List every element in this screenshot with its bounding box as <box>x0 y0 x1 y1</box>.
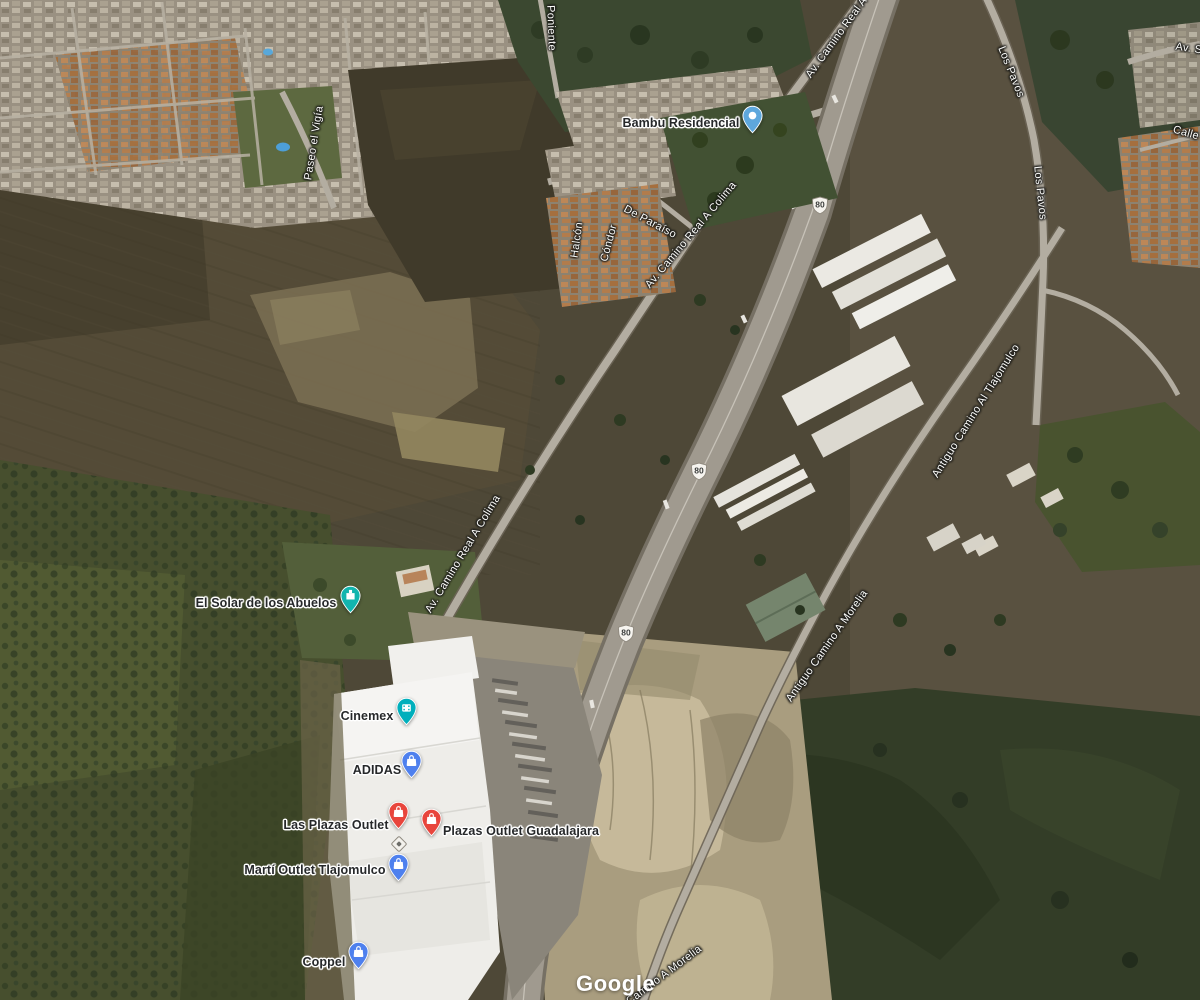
satellite-imagery <box>0 0 1200 1000</box>
route-number: 80 <box>810 200 830 210</box>
poi-label[interactable]: Plazas Outlet Guadalajara <box>443 824 599 838</box>
poi-label[interactable]: Las Plazas Outlet <box>283 818 388 832</box>
poi-label[interactable]: Bambu Residencial <box>622 116 739 130</box>
poi-label[interactable]: Cinemex <box>341 709 394 723</box>
poi-pin-lodging[interactable] <box>340 585 361 614</box>
route-shield-80: 80 <box>616 624 636 645</box>
route-number: 80 <box>616 628 636 638</box>
poi-label[interactable]: Martí Outlet Tlajomulco <box>244 863 385 877</box>
poi-pin-place[interactable] <box>742 105 763 134</box>
poi-pin-shopping[interactable] <box>348 941 369 970</box>
poi-pin-movies[interactable] <box>396 697 417 726</box>
poi-pin-shopping[interactable] <box>388 853 409 882</box>
poi-pin-shopping[interactable] <box>401 750 422 779</box>
poi-label[interactable]: El Solar de los Abuelos <box>196 596 337 610</box>
poi-label[interactable]: ADIDAS <box>353 763 402 777</box>
route-shield-80: 80 <box>810 196 830 217</box>
minor-poi-glyph <box>396 841 402 847</box>
poi-label[interactable]: Coppel <box>303 955 346 969</box>
map-viewport[interactable]: Poniente Paseo el Vigía De Paraíso Halcó… <box>0 0 1200 1000</box>
route-shield-80: 80 <box>689 462 709 483</box>
route-number: 80 <box>689 466 709 476</box>
google-attribution[interactable]: Google <box>576 971 655 997</box>
poi-pin-shopping[interactable] <box>421 808 442 837</box>
poi-pin-shopping[interactable] <box>388 801 409 830</box>
